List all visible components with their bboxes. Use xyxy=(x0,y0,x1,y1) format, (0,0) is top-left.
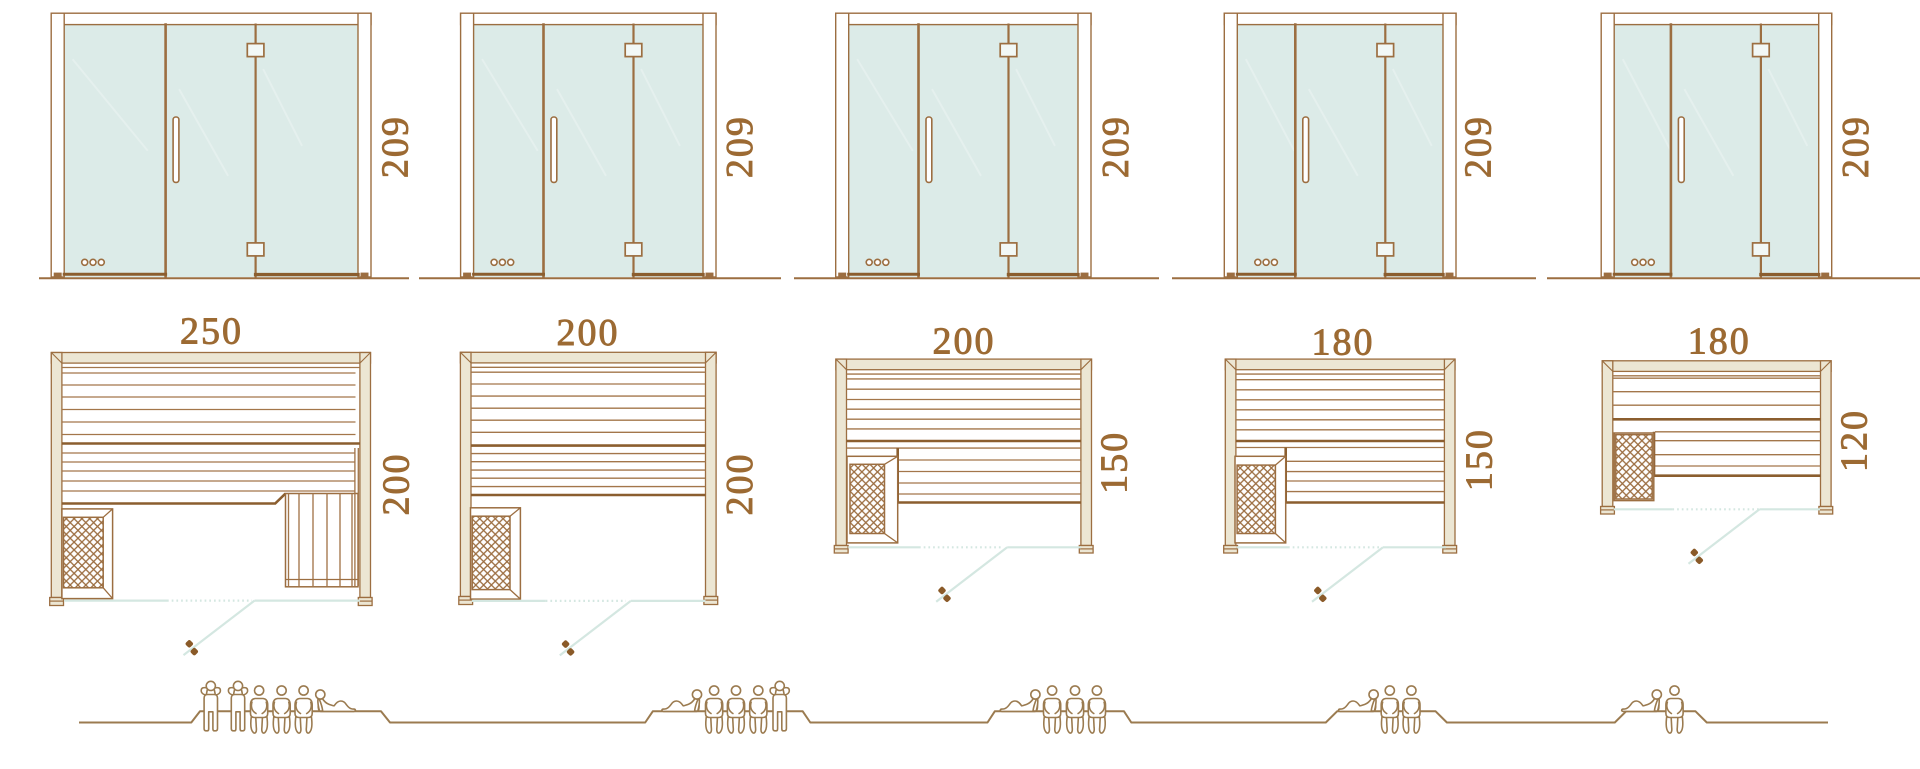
svg-text:209: 209 xyxy=(719,115,761,178)
svg-text:150: 150 xyxy=(1459,428,1501,491)
svg-text:200: 200 xyxy=(557,312,620,354)
svg-text:180: 180 xyxy=(1312,322,1375,364)
svg-text:250: 250 xyxy=(180,310,243,352)
svg-text:180: 180 xyxy=(1688,321,1751,363)
svg-text:200: 200 xyxy=(376,453,418,516)
svg-text:200: 200 xyxy=(933,321,996,363)
svg-text:209: 209 xyxy=(1835,115,1877,178)
svg-text:120: 120 xyxy=(1834,409,1876,472)
svg-text:200: 200 xyxy=(719,453,761,516)
svg-text:209: 209 xyxy=(374,115,416,178)
svg-text:209: 209 xyxy=(1458,115,1500,178)
svg-text:150: 150 xyxy=(1094,431,1136,494)
svg-text:209: 209 xyxy=(1095,115,1137,178)
